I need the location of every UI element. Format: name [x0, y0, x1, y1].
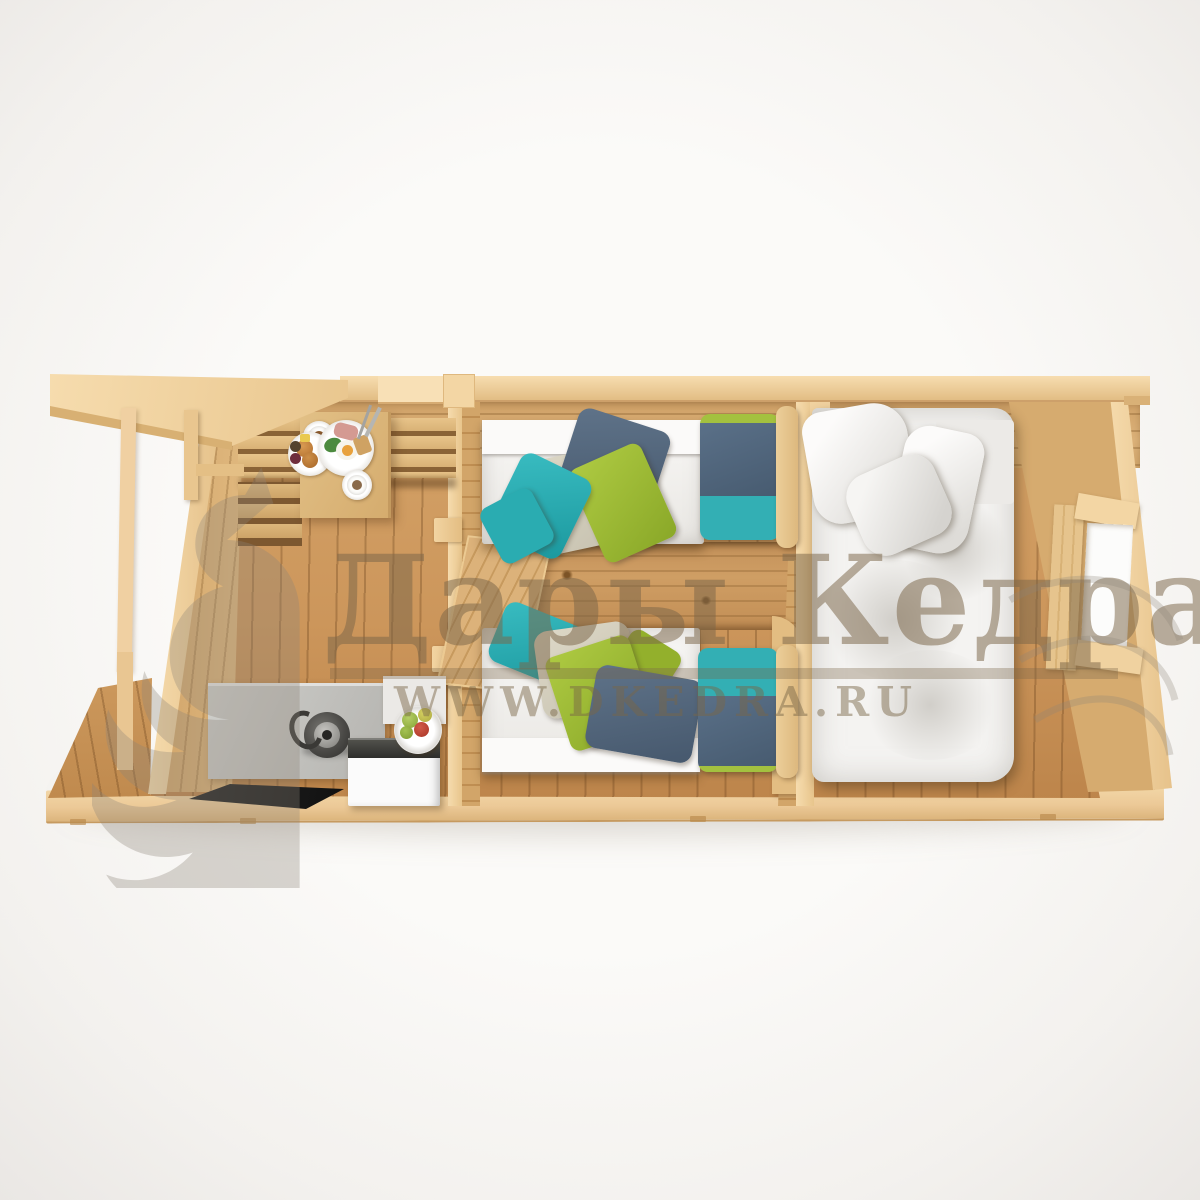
- bed-frame-end: [776, 406, 798, 548]
- pillow-navy-panel: [700, 423, 780, 496]
- render-canvas: { "watermark": { "brand": "Дары Кедра", …: [0, 0, 1200, 1200]
- squirrel-logo-icon: [92, 452, 344, 888]
- base-foot: [690, 816, 706, 822]
- base-foot: [70, 819, 86, 825]
- scene-stage: Дары Кедра WWW.DKEDRA.RU: [0, 0, 1200, 1200]
- twin-pillow-top: [700, 414, 780, 540]
- partition-top-block: [443, 374, 475, 408]
- green-apple: [400, 726, 413, 739]
- roof-overhang-step: [1124, 396, 1150, 405]
- pillow-green-band: [698, 766, 778, 772]
- watermark-url-text: WWW.DKEDRA.RU: [394, 682, 919, 723]
- pillow-green-band: [700, 414, 780, 423]
- jam-dish: [290, 441, 301, 452]
- butter: [300, 434, 310, 442]
- watermark-swirl-icon: [1000, 540, 1190, 790]
- dessert: [352, 480, 362, 490]
- base-foot: [1040, 814, 1056, 820]
